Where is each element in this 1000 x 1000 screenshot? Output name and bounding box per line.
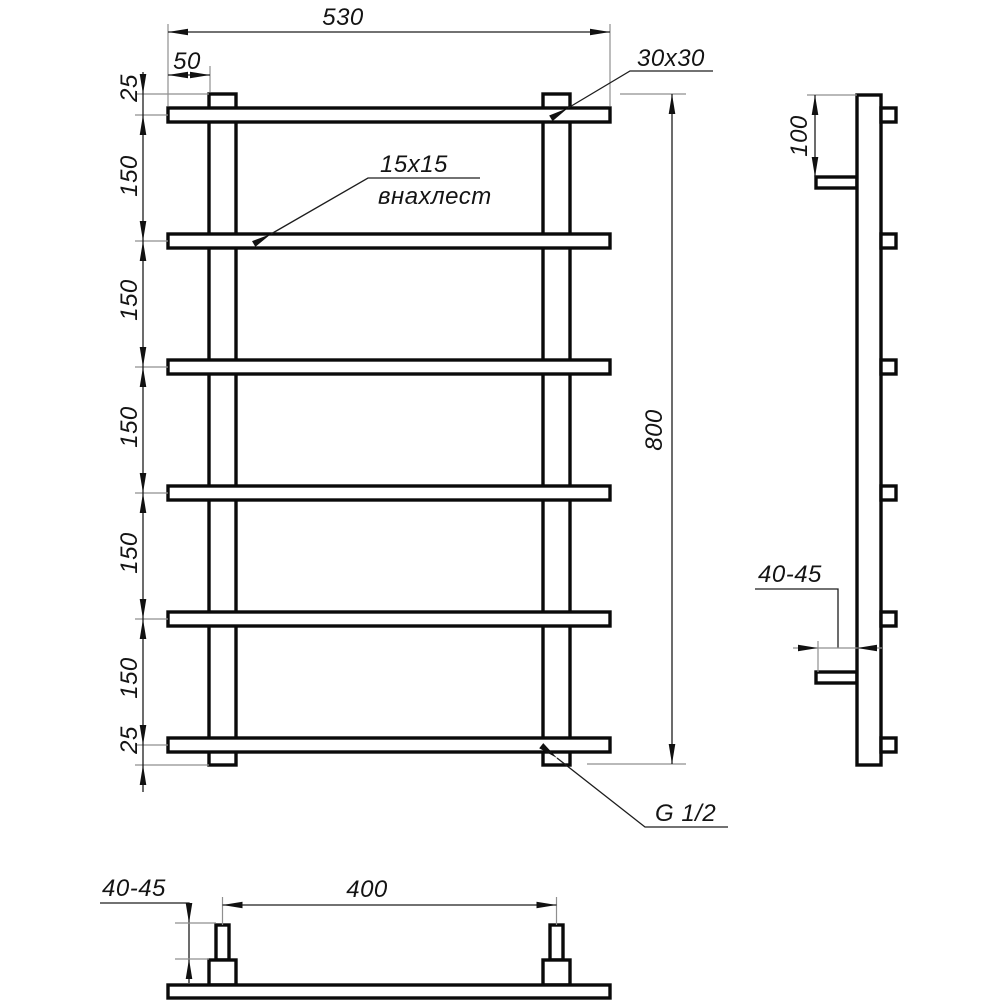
label-post-section: 30x30 bbox=[637, 45, 705, 72]
towel-rail-technical-drawing: 530 50 25 150 150 150 150 150 25 800 30x… bbox=[0, 0, 1000, 1000]
dim-spacing-150-5: 150 bbox=[116, 657, 143, 699]
front-rung-4 bbox=[168, 486, 610, 500]
side-post-profile bbox=[857, 95, 881, 765]
bottom-mount-pipe-left bbox=[216, 925, 229, 960]
dim-spacing-150-1: 150 bbox=[116, 155, 143, 197]
front-rung-2 bbox=[168, 234, 610, 248]
bottom-rung-profile bbox=[168, 985, 610, 998]
dim-wall-gap-side: 40-45 bbox=[758, 561, 822, 588]
front-rung-3 bbox=[168, 360, 610, 374]
side-view bbox=[816, 95, 896, 765]
dim-spacing-150-2: 150 bbox=[116, 279, 143, 321]
side-rung-stub-6 bbox=[881, 738, 896, 752]
side-bracket-bottom bbox=[816, 672, 857, 683]
dim-width-530: 530 bbox=[322, 4, 364, 31]
label-rung-section: 15x15 bbox=[380, 151, 448, 178]
dim-bracket-offset-100: 100 bbox=[786, 115, 813, 157]
bottom-post-left bbox=[209, 960, 236, 985]
front-post-right bbox=[543, 94, 570, 765]
drawing-sheet: 530 50 25 150 150 150 150 150 25 800 30x… bbox=[0, 0, 1000, 1000]
side-rung-stub-3 bbox=[881, 360, 896, 374]
dim-spacing-150-4: 150 bbox=[116, 532, 143, 574]
side-rung-stub-4 bbox=[881, 486, 896, 500]
bottom-view-dimensions: 400 40-45 bbox=[100, 875, 557, 983]
bottom-view bbox=[168, 925, 610, 998]
bottom-post-right bbox=[543, 960, 570, 985]
side-rung-stub-1 bbox=[881, 108, 896, 122]
front-post-left bbox=[209, 94, 236, 765]
label-thread-g12: G 1/2 bbox=[655, 800, 716, 827]
side-rung-stub-2 bbox=[881, 234, 896, 248]
front-rung-5 bbox=[168, 612, 610, 626]
bottom-mount-pipe-right bbox=[550, 925, 563, 960]
dim-top-margin-25: 25 bbox=[116, 74, 143, 103]
side-rung-stub-5 bbox=[881, 612, 896, 626]
dim-spacing-150-3: 150 bbox=[116, 406, 143, 448]
dim-post-offset-50: 50 bbox=[173, 48, 201, 75]
label-overlap-note: внахлест bbox=[378, 183, 492, 210]
dim-wall-gap-bottom: 40-45 bbox=[102, 875, 166, 902]
front-rung-1 bbox=[168, 108, 610, 122]
dim-bottom-margin-25: 25 bbox=[116, 726, 143, 755]
dim-height-800: 800 bbox=[641, 409, 668, 451]
dim-mount-spacing-400: 400 bbox=[346, 876, 388, 903]
side-bracket-top bbox=[816, 177, 857, 188]
